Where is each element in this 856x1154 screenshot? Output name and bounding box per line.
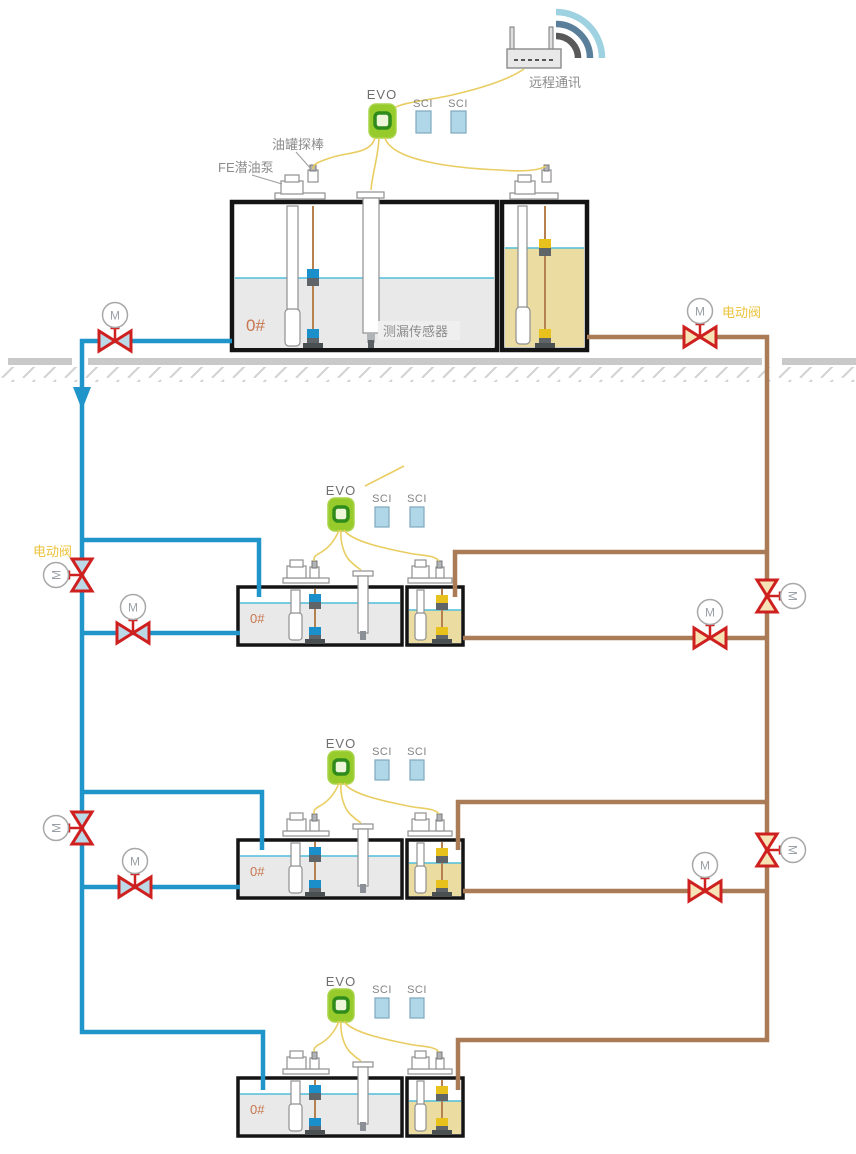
electric-valve-label-left: 电动阀	[33, 544, 72, 559]
leak-sensor-label: 测漏传感器	[383, 324, 448, 339]
motor-valve	[99, 303, 131, 352]
float	[539, 239, 551, 248]
motor-valve	[757, 580, 806, 612]
antenna	[510, 27, 514, 50]
float	[307, 278, 319, 286]
router	[507, 27, 561, 68]
sci-module	[416, 111, 431, 133]
supply-pipe-blue	[73, 341, 263, 1090]
electric-motor-valve	[684, 299, 716, 348]
evo-label: EVO	[367, 87, 397, 102]
submersible-pump-body	[516, 307, 530, 344]
pump-head-top	[518, 175, 531, 182]
pump-head-top	[285, 175, 299, 182]
pump-head	[281, 181, 303, 194]
pump-head	[515, 181, 535, 194]
valves-brown-side	[684, 299, 806, 902]
fuel-grade-label: 0#	[246, 316, 265, 335]
leak-sensor-tip	[368, 340, 374, 348]
ground-line	[0, 358, 856, 382]
probe-port	[542, 170, 551, 182]
fuel-station-diagram: M 0#	[0, 0, 856, 1154]
station-row-3	[238, 736, 463, 898]
sci-module	[451, 111, 466, 133]
motor-valve	[689, 853, 721, 902]
float	[539, 248, 551, 256]
probe-wire	[385, 138, 546, 171]
ground-hatch	[0, 367, 856, 382]
motor-valve	[117, 595, 149, 644]
comm-wire-stub	[365, 466, 404, 486]
float	[539, 329, 551, 338]
motor-valve	[119, 849, 151, 898]
flow-arrow	[73, 387, 91, 410]
tank-probe-label: 油罐探棒	[272, 137, 324, 152]
float	[307, 269, 319, 278]
evo-screen	[375, 113, 390, 128]
pump-column	[287, 206, 298, 311]
evo-controller-top: EVO SCI SCI	[313, 87, 546, 190]
motor-valve	[757, 834, 806, 866]
electric-motor-valve	[44, 559, 93, 591]
electric-valve-label-top: 电动阀	[722, 305, 761, 320]
motor-valve	[694, 600, 726, 649]
router-body	[507, 49, 561, 68]
wifi-signal-icon	[556, 12, 602, 58]
label-leader	[252, 175, 282, 184]
antenna	[549, 27, 553, 50]
submersible-pump-body	[285, 309, 300, 346]
diagram-svg: M 0#	[0, 0, 856, 1154]
pump-column	[518, 206, 527, 309]
main-tank: 0#	[232, 165, 587, 350]
return-pipe-brown	[455, 337, 767, 1090]
sci-label: SCI	[448, 98, 468, 110]
station-row-2	[238, 483, 463, 645]
motor-valve	[44, 812, 93, 844]
station-row-4	[238, 974, 463, 1136]
leak-sensor-tube	[363, 198, 379, 333]
submersible-pump-label: FE潜油泵	[218, 160, 274, 175]
float	[307, 329, 319, 338]
valves-blue-side	[44, 303, 152, 898]
sci-label: SCI	[413, 98, 433, 110]
probe-base	[535, 343, 555, 348]
sensor-wire	[371, 138, 379, 190]
leak-tube-flange	[357, 192, 384, 198]
probe-port	[308, 170, 318, 182]
remote-comm-label: 远程通讯	[529, 75, 581, 90]
label-leader	[296, 152, 311, 169]
probe-base	[303, 343, 323, 348]
